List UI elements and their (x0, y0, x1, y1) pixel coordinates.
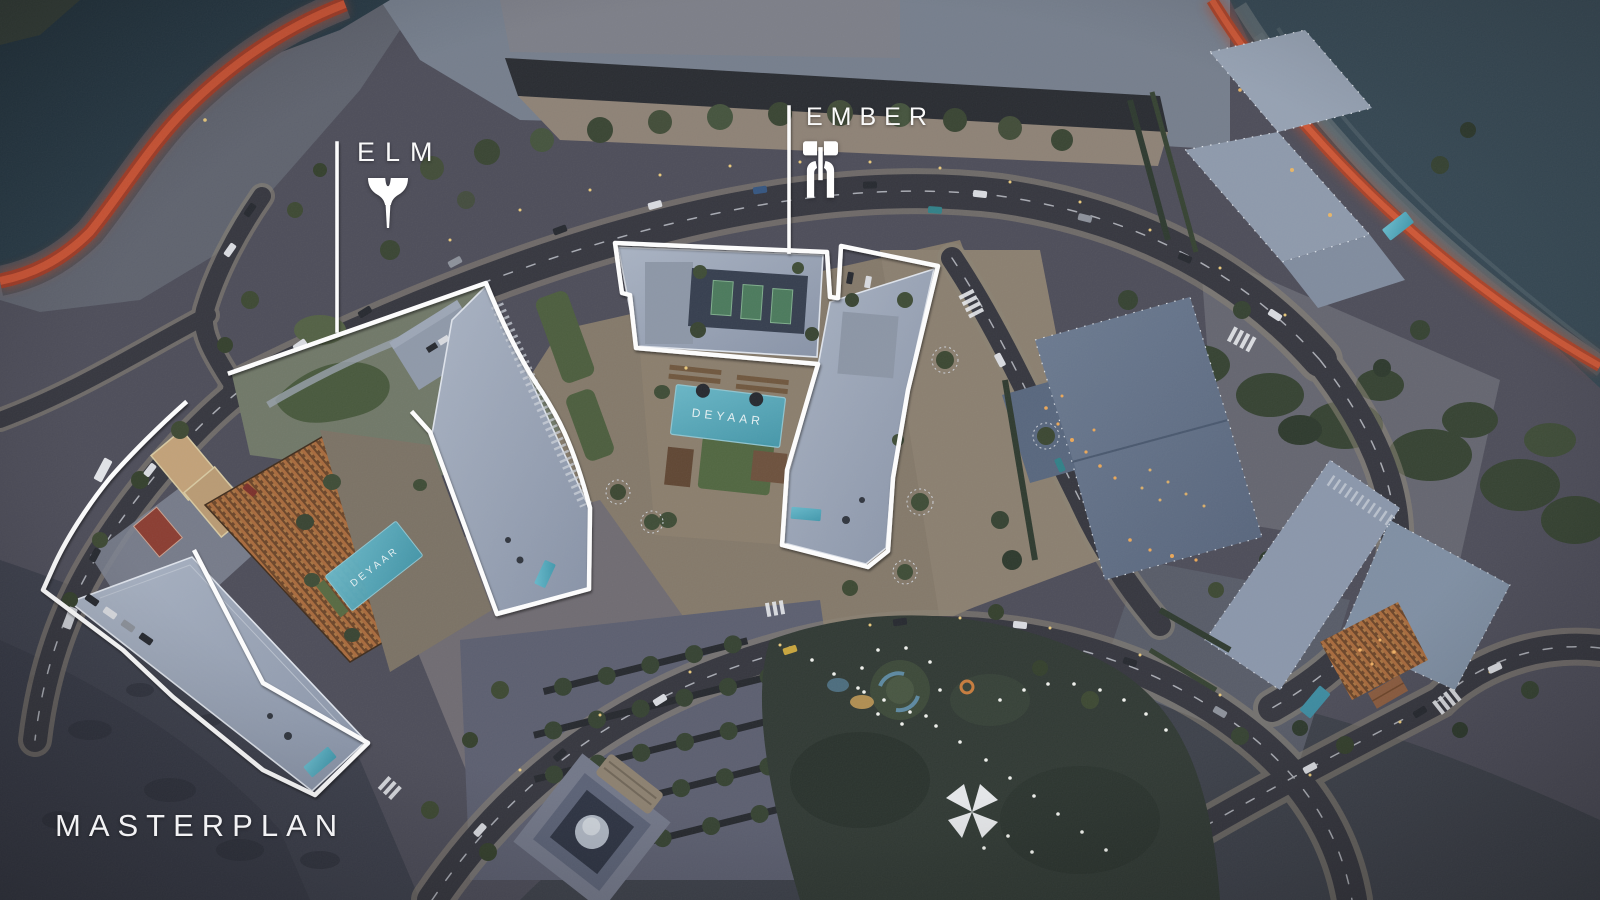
ember-logo-icon[interactable] (803, 141, 838, 198)
ember-plot-label[interactable]: EMBER (806, 105, 935, 130)
elm-logo-icon[interactable] (366, 177, 410, 229)
aerial-render: DEYAAR (0, 0, 1600, 900)
vignette (0, 0, 1600, 900)
elm-plot-label[interactable]: ELM (357, 139, 443, 166)
masterplan-view: DEYAAR (0, 0, 1600, 900)
page-title: MASTERPLAN (55, 810, 345, 841)
